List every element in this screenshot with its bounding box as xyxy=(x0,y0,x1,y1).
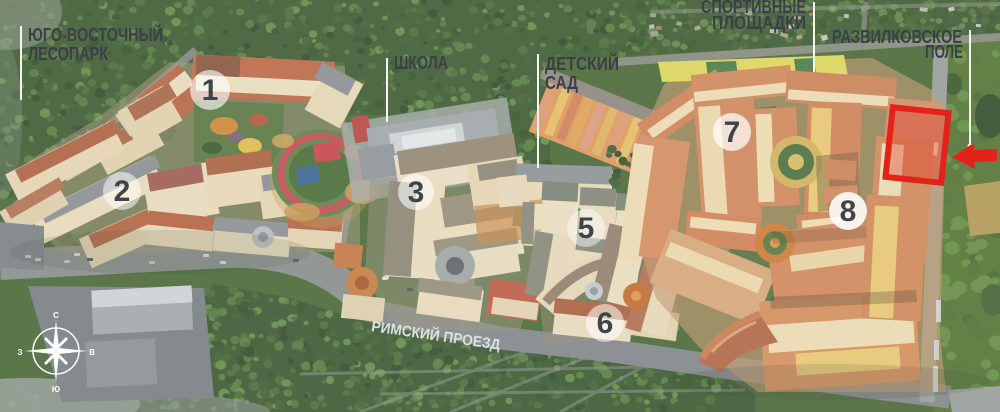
svg-text:ПОЛЕ: ПОЛЕ xyxy=(925,42,963,62)
svg-text:ЛЕСОПАРК: ЛЕСОПАРК xyxy=(28,44,109,64)
svg-text:Ю: Ю xyxy=(52,385,60,394)
svg-text:6: 6 xyxy=(597,307,614,340)
svg-text:ЮГО-ВОСТОЧНЫЙ: ЮГО-ВОСТОЧНЫЙ xyxy=(28,24,163,45)
svg-text:З: З xyxy=(17,348,22,357)
svg-text:ДЕТСКИЙ: ДЕТСКИЙ xyxy=(545,53,619,74)
svg-text:ШКОЛА: ШКОЛА xyxy=(394,53,448,73)
svg-text:В: В xyxy=(89,348,95,357)
svg-text:С: С xyxy=(53,311,59,320)
svg-text:8: 8 xyxy=(840,195,857,228)
svg-text:2: 2 xyxy=(114,175,131,208)
svg-text:5: 5 xyxy=(578,212,595,245)
svg-text:3: 3 xyxy=(408,176,425,209)
svg-text:7: 7 xyxy=(724,116,741,149)
svg-text:1: 1 xyxy=(202,74,219,107)
svg-text:САД: САД xyxy=(545,73,578,93)
svg-text:ПЛОЩАДКИ: ПЛОЩАДКИ xyxy=(712,13,806,33)
